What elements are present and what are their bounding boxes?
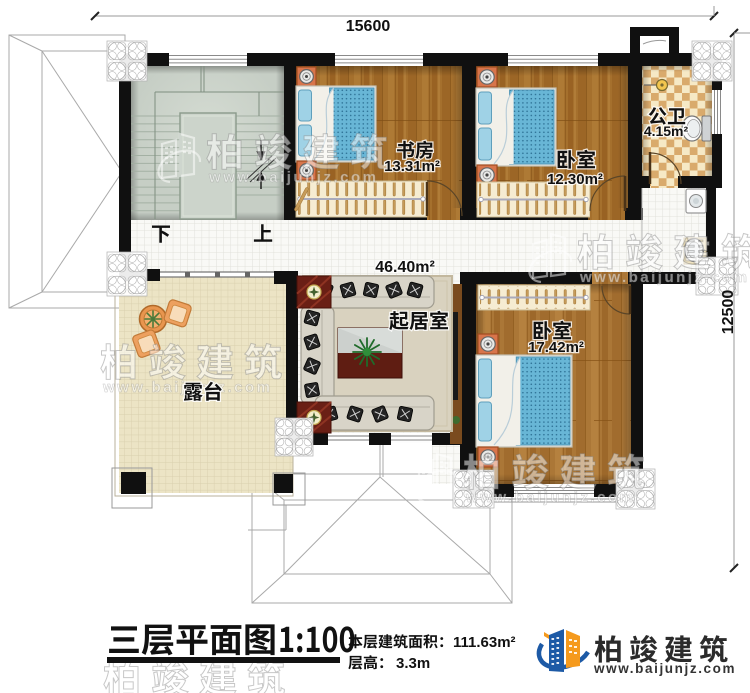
svg-text:17.42m²: 17.42m² xyxy=(528,339,584,356)
svg-text:4.15m²: 4.15m² xyxy=(644,123,689,139)
svg-text:111.63m²: 111.63m² xyxy=(453,634,516,651)
svg-text:15600: 15600 xyxy=(346,18,391,35)
svg-text:12500: 12500 xyxy=(720,290,737,335)
svg-text:12.30m²: 12.30m² xyxy=(547,171,603,188)
svg-text:www.baijunjz.com: www.baijunjz.com xyxy=(593,661,736,676)
svg-text:46.40m²: 46.40m² xyxy=(375,259,435,276)
svg-text:www.baijunjz.com: www.baijunjz.com xyxy=(208,169,378,186)
svg-text:13.31m²: 13.31m² xyxy=(384,158,440,175)
svg-text:www.baijunjz.com: www.baijunjz.com xyxy=(465,489,635,506)
svg-text:3.3m: 3.3m xyxy=(396,655,430,672)
svg-text:www.baijunjz.com: www.baijunjz.com xyxy=(579,269,749,286)
